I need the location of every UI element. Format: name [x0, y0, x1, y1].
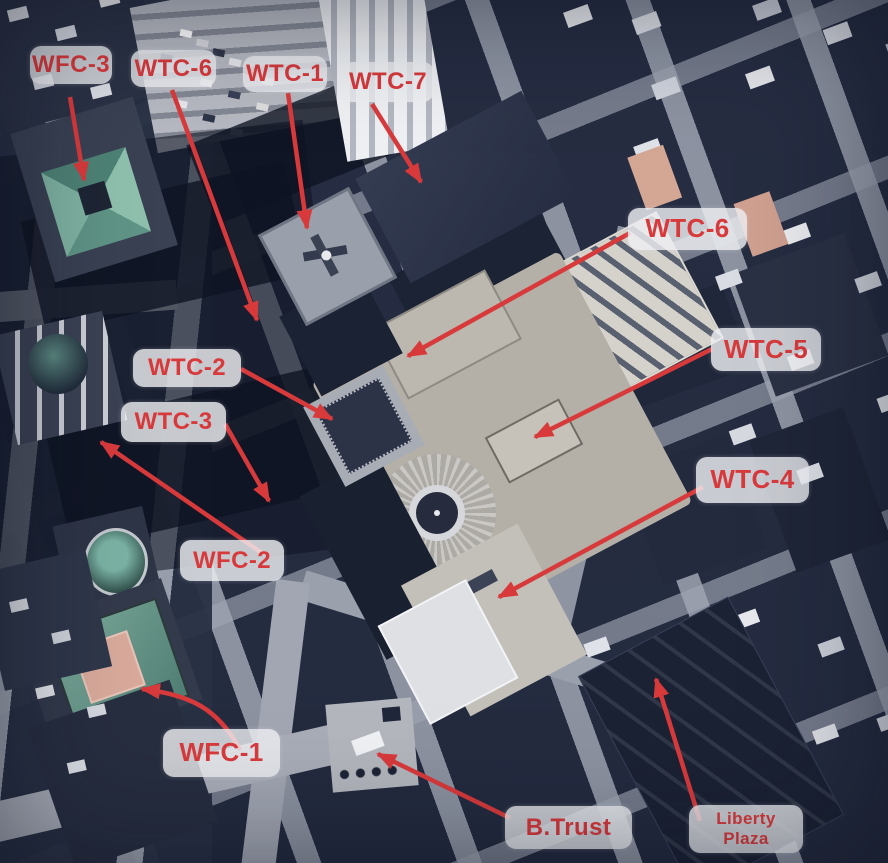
annotation-label-wfc-3: WFC-3 [30, 46, 112, 84]
annotation-label-wtc-4: WTC-4 [696, 457, 809, 503]
annotation-label-wfc-2: WFC-2 [180, 540, 284, 581]
annotation-label-wtc-6-upper: WTC-6 [131, 50, 216, 87]
annotation-label-wtc-2: WTC-2 [133, 349, 241, 387]
aerial-photo: WFC-3WTC-6WTC-1WTC-7WTC-6WTC-5WTC-2WTC-3… [0, 0, 888, 863]
dome-roof [28, 334, 88, 394]
annotation-label-wtc-7: WTC-7 [342, 62, 434, 102]
annotation-label-wtc-6-right: WTC-6 [628, 208, 747, 250]
fountain-sphere [434, 510, 440, 516]
annotation-label-wtc-3: WTC-3 [121, 402, 226, 442]
annotation-label-wfc-1: WFC-1 [163, 729, 280, 777]
annotation-label-liberty-plaza: Liberty Plaza [689, 805, 803, 853]
building-bankers-trust [325, 697, 418, 792]
annotation-label-b-trust: B.Trust [505, 806, 632, 849]
annotation-label-wtc-1: WTC-1 [243, 56, 327, 92]
annotation-label-wtc-5: WTC-5 [711, 328, 821, 371]
